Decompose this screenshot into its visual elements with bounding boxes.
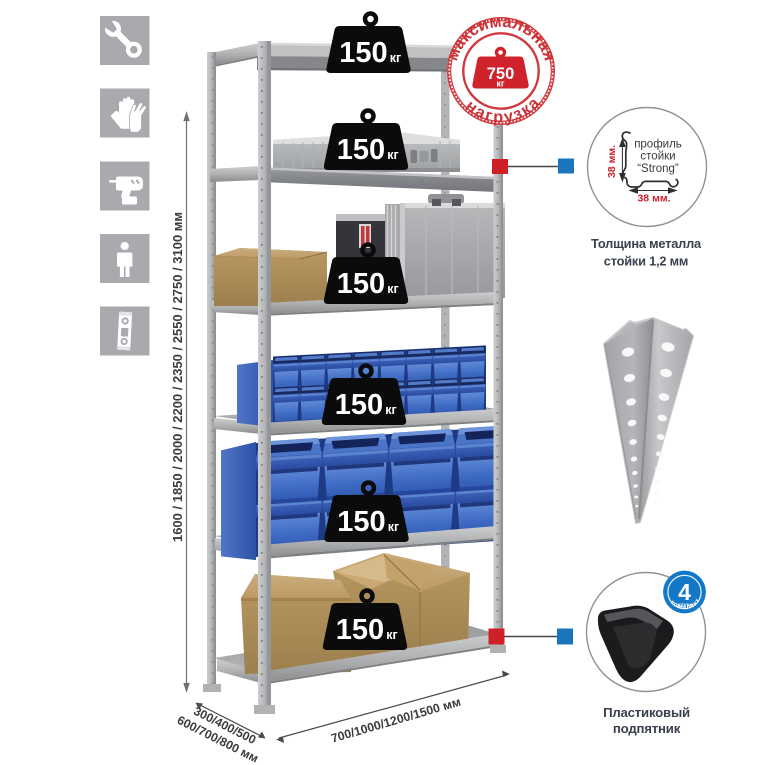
svg-text:150: 150 xyxy=(339,37,387,69)
svg-text:кг: кг xyxy=(387,282,398,296)
svg-text:кг: кг xyxy=(387,148,398,162)
svg-text:“Strong”: “Strong” xyxy=(637,163,679,175)
svg-text:150: 150 xyxy=(337,506,385,538)
svg-text:Толщина металла: Толщина металла xyxy=(591,236,702,251)
svg-text:1600 / 1850 / 2000 / 2200 / 23: 1600 / 1850 / 2000 / 2200 / 2350 / 2550 … xyxy=(170,212,185,542)
svg-text:кг: кг xyxy=(386,628,397,642)
svg-text:150: 150 xyxy=(336,614,384,646)
svg-text:кг: кг xyxy=(388,520,399,534)
svg-text:подпятник: подпятник xyxy=(613,721,681,736)
svg-text:стойки 1,2 мм: стойки 1,2 мм xyxy=(604,254,688,269)
svg-text:38 мм.: 38 мм. xyxy=(606,145,618,178)
svg-text:профиль: профиль xyxy=(634,139,682,151)
svg-text:кг: кг xyxy=(390,51,401,65)
svg-text:4: 4 xyxy=(678,579,691,605)
svg-text:стойки: стойки xyxy=(640,151,675,163)
svg-text:150: 150 xyxy=(337,134,385,166)
svg-text:150: 150 xyxy=(335,389,383,421)
svg-text:кг: кг xyxy=(496,79,505,89)
svg-text:38 мм.: 38 мм. xyxy=(637,193,670,205)
svg-text:кг: кг xyxy=(385,403,396,417)
svg-text:150: 150 xyxy=(337,268,385,300)
svg-text:Пластиковый: Пластиковый xyxy=(603,705,690,720)
